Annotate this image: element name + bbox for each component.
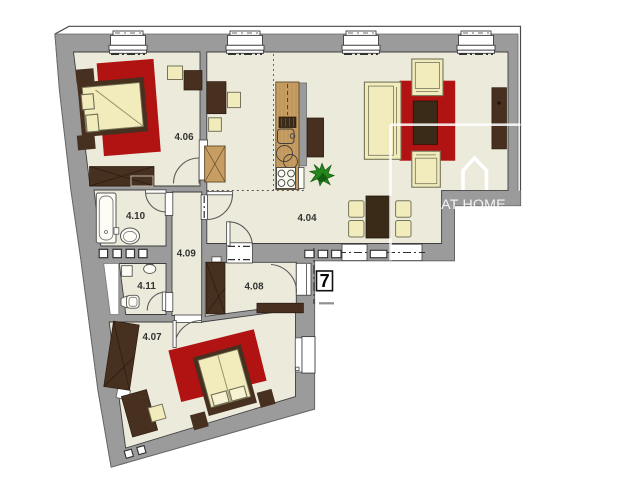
svg-text:4.09: 4.09 — [177, 249, 197, 260]
svg-text:4.04: 4.04 — [297, 213, 317, 224]
svg-text:4.06: 4.06 — [174, 132, 194, 143]
svg-text:7: 7 — [320, 271, 330, 291]
svg-text:4.10: 4.10 — [126, 211, 146, 222]
svg-text:AT HOME: AT HOME — [441, 197, 506, 213]
svg-text:4.11: 4.11 — [137, 281, 156, 292]
svg-text:4.08: 4.08 — [244, 282, 264, 293]
svg-text:4.07: 4.07 — [142, 332, 162, 343]
